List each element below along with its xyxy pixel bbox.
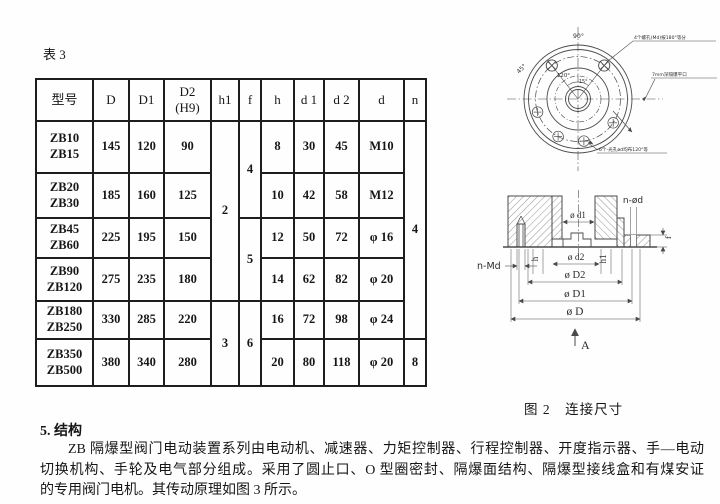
cell-d1: 72: [294, 301, 324, 339]
cell-n: 8: [404, 339, 426, 386]
cell-model: ZB45 ZB60: [36, 218, 93, 258]
cell-d: φ 24: [359, 301, 404, 339]
cell-f-merged: 5: [239, 218, 261, 301]
model-name: ZB120: [37, 280, 92, 296]
cell-f-merged: 4: [239, 121, 261, 218]
bolt-hole-crossed: [599, 60, 610, 71]
cell-d1: 50: [294, 218, 324, 258]
cell-model: ZB180 ZB250: [36, 301, 93, 339]
col-header-model: 型号: [36, 79, 93, 121]
cell-d2: 118: [324, 339, 359, 386]
angle-label-15: 15°: [579, 79, 588, 85]
cell-d2: 45: [324, 121, 359, 173]
cell-D1: 195: [129, 218, 164, 258]
cell-D1: 285: [129, 301, 164, 339]
cell-model: ZB350 ZB500: [36, 339, 93, 386]
model-name: ZB20: [37, 180, 92, 196]
dim-label-d1: ø d1: [570, 210, 586, 220]
col-header-D2: D2 (H9): [164, 79, 211, 121]
cell-d2: 72: [324, 218, 359, 258]
paragraph-line: 切换机构、手轮及电气部分组成。采用了圆止口、O 型圈密封、隔爆面结构、隔爆型接线…: [40, 461, 704, 482]
cell-h: 14: [261, 258, 294, 301]
cell-model: ZB10 ZB15: [36, 121, 93, 173]
cell-n-merged: 4: [404, 121, 426, 339]
dim-label-D: ø D: [567, 306, 584, 318]
cell-D: 225: [93, 218, 129, 258]
col-header-D1: D1: [129, 79, 164, 121]
document-page: 表 3 型号 D D1 D2 (H9) h1 f h d 1 d 2 d n Z…: [0, 0, 720, 504]
cell-D1: 235: [129, 258, 164, 301]
section-arrow-label-A: A: [581, 338, 590, 352]
cell-h: 8: [261, 121, 294, 173]
cell-d1: 62: [294, 258, 324, 301]
cell-D2: 90: [164, 121, 211, 173]
model-name: ZB250: [37, 320, 92, 336]
cell-D2: 125: [164, 173, 211, 218]
model-name: ZB350: [37, 347, 92, 363]
angle-label-120: 120°: [557, 73, 570, 79]
col-header-D: D: [93, 79, 129, 121]
col-header-h: h: [261, 79, 294, 121]
cell-d1: 80: [294, 339, 324, 386]
model-name: ZB180: [37, 304, 92, 320]
model-name: ZB90: [37, 264, 92, 280]
cell-h1-merged: 2: [211, 121, 239, 301]
dim-label-n-od: n-ød: [623, 196, 643, 206]
col-header-h1: h1: [211, 79, 239, 121]
table-row: ZB180 ZB250 330 285 220 3 6 16 72 98 φ 2…: [36, 301, 426, 339]
col-header-D2-line2: (H9): [165, 100, 210, 116]
model-name: ZB15: [37, 147, 92, 163]
cell-D: 380: [93, 339, 129, 386]
cell-D: 145: [93, 121, 129, 173]
flange-top-view-drawing: 90° 45° 120° 15° 4个螺孔(Md)按180°等分 7mm深隔爆平…: [495, 15, 720, 187]
col-header-d1: d 1: [294, 79, 324, 121]
model-name: ZB45: [37, 222, 92, 238]
cell-model: ZB90 ZB120: [36, 258, 93, 301]
col-header-f: f: [239, 79, 261, 121]
dim-label-D2: ø D2: [565, 270, 586, 281]
cell-h: 16: [261, 301, 294, 339]
cell-f-merged: 6: [239, 301, 261, 386]
flange-section-view-drawing: ø d1 n-ød n-Md h ø d2 h1 ø D2 ø D1 ø D f…: [475, 188, 720, 360]
cell-D2: 150: [164, 218, 211, 258]
cell-D2: 180: [164, 258, 211, 301]
output-boss: [563, 233, 591, 247]
bolt-hole-crossed: [546, 60, 557, 71]
dim-label-n-Md: n-Md: [477, 261, 501, 272]
model-name: ZB500: [37, 363, 92, 379]
cell-d: M10: [359, 121, 404, 173]
dim-label-h: h: [530, 256, 540, 261]
dimensions-table: 型号 D D1 D2 (H9) h1 f h d 1 d 2 d n ZB10 …: [35, 78, 427, 387]
body-paragraph: ZB 隔爆型阀门电动装置系列由电动机、减速器、力矩控制器、行程控制器、开度指示器…: [40, 440, 704, 502]
cell-h: 10: [261, 173, 294, 218]
cell-D1: 160: [129, 173, 164, 218]
col-header-d2: d 2: [324, 79, 359, 121]
paragraph-line: 的专用阀门电机。其传动原理如图 3 所示。: [40, 481, 704, 502]
callout-screw-holes: 4个螺孔(Md)按180°等分: [634, 34, 686, 41]
model-name: ZB60: [37, 238, 92, 254]
cell-d: φ 16: [359, 218, 404, 258]
cell-model: ZB20 ZB30: [36, 173, 93, 218]
model-name: ZB30: [37, 196, 92, 212]
cell-h1-merged: 3: [211, 301, 239, 386]
section-heading: 5. 结构: [40, 420, 82, 440]
cell-D: 275: [93, 258, 129, 301]
cell-d1: 42: [294, 173, 324, 218]
col-header-D2-line1: D2: [165, 84, 210, 100]
model-name: ZB10: [37, 131, 92, 147]
callout-spigot-face: 7mm深隔爆平口: [652, 71, 687, 78]
cell-D2: 220: [164, 301, 211, 339]
dim-label-f: f: [663, 236, 673, 239]
table-caption: 表 3: [43, 44, 66, 63]
cell-h: 12: [261, 218, 294, 258]
cell-d: φ 20: [359, 258, 404, 301]
cell-d2: 82: [324, 258, 359, 301]
col-header-d: d: [359, 79, 404, 121]
paragraph-line: ZB 隔爆型阀门电动装置系列由电动机、减速器、力矩控制器、行程控制器、开度指示器…: [40, 440, 704, 461]
table-row: ZB10 ZB15 145 120 90 2 4 8 30 45 M10 4: [36, 121, 426, 173]
cell-d1: 30: [294, 121, 324, 173]
cell-D1: 120: [129, 121, 164, 173]
cell-h: 20: [261, 339, 294, 386]
cell-d: φ 20: [359, 339, 404, 386]
dim-label-d2: ø d2: [568, 253, 585, 263]
cell-D: 330: [93, 301, 129, 339]
cell-d2: 58: [324, 173, 359, 218]
dim-label-D1: ø D1: [564, 288, 586, 300]
cell-d2: 98: [324, 301, 359, 339]
angle-label-90: 90°: [573, 32, 584, 40]
callout-clearance-holes: 6个-光孔ød均布120°等: [599, 146, 648, 153]
cell-D1: 340: [129, 339, 164, 386]
angle-label-45: 45°: [515, 63, 527, 75]
col-header-n: n: [404, 79, 426, 121]
cell-D2: 280: [164, 339, 211, 386]
dim-label-h1: h1: [598, 255, 608, 264]
figure-caption: 图 2 连接尺寸: [524, 398, 623, 418]
cell-D: 185: [93, 173, 129, 218]
header-row: 型号 D D1 D2 (H9) h1 f h d 1 d 2 d n: [36, 79, 426, 121]
cell-d: M12: [359, 173, 404, 218]
